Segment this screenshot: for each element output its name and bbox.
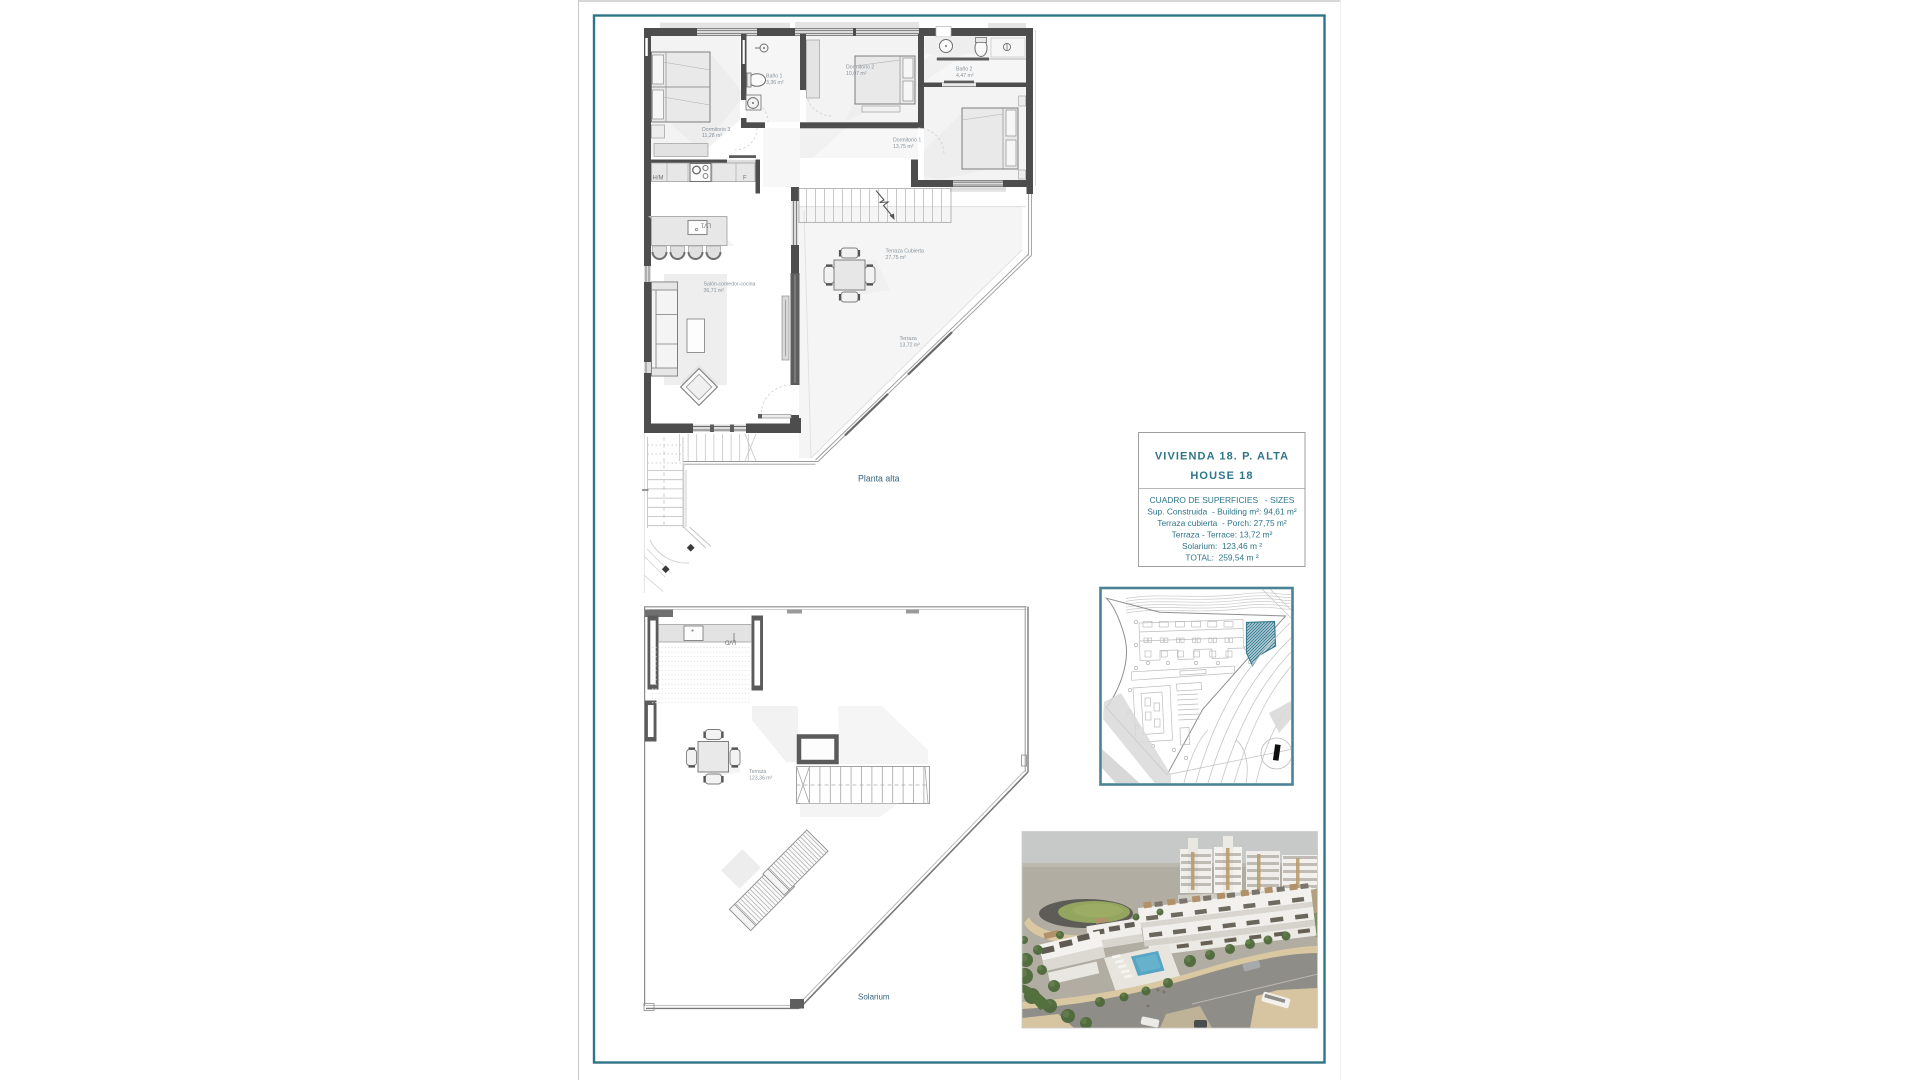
svg-text:Planta alta: Planta alta	[858, 474, 900, 484]
svg-text:VIVIENDA 18. P. ALTA: VIVIENDA 18. P. ALTA	[1155, 451, 1289, 463]
svg-text:11,28 m²: 11,28 m²	[702, 133, 722, 139]
svg-text:Terraza - Terrace: 13,72 m²: Terraza - Terrace: 13,72 m²	[1172, 530, 1273, 540]
svg-text:123,36 m²: 123,36 m²	[749, 776, 773, 782]
svg-text:LV1: LV1	[700, 222, 711, 228]
svg-text:3,36 m²: 3,36 m²	[766, 80, 784, 86]
svg-text:Solarium: Solarium	[858, 993, 890, 1002]
svg-text:TOTAL: 259,54 m ²: TOTAL: 259,54 m ²	[1185, 553, 1258, 563]
svg-text:F: F	[743, 176, 747, 182]
svg-text:HOUSE 18: HOUSE 18	[1190, 470, 1253, 482]
svg-text:Sup. Construida - Building m²: Sup. Construida - Building m²: 94,61 m²	[1147, 507, 1297, 517]
svg-text:13,75 m²: 13,75 m²	[893, 144, 914, 150]
svg-text:Baño 1: Baño 1	[766, 74, 783, 80]
svg-text:36,71 m²: 36,71 m²	[704, 288, 725, 294]
svg-text:10,07 m²: 10,07 m²	[846, 71, 867, 77]
svg-text:LVD: LVD	[724, 639, 736, 645]
svg-text:CUADRO DE SUPERFICIES - SIZE: CUADRO DE SUPERFICIES - SIZES	[1150, 495, 1295, 505]
svg-text:Baño 2: Baño 2	[956, 67, 973, 73]
svg-text:Dormitorio 1: Dormitorio 1	[893, 138, 921, 144]
svg-text:27,75 m²: 27,75 m²	[886, 255, 907, 261]
svg-text:Dormitorio 2: Dormitorio 2	[846, 65, 874, 71]
svg-text:13,72 m²: 13,72 m²	[900, 343, 921, 349]
svg-text:Salón-comedor-cocina: Salón-comedor-cocina	[704, 282, 756, 288]
svg-text:Terraza: Terraza	[749, 769, 766, 775]
svg-text:Solarium: 123,46 m ²: Solarium: 123,46 m ²	[1182, 541, 1262, 551]
svg-text:4,47 m²: 4,47 m²	[956, 73, 974, 79]
svg-text:Terraza: Terraza	[900, 336, 917, 342]
svg-text:H/M: H/M	[653, 176, 664, 182]
svg-text:Terraza cubierta - Porch: 27,: Terraza cubierta - Porch: 27,75 m²	[1157, 518, 1287, 528]
svg-text:Terraza Cubierta: Terraza Cubierta	[886, 249, 924, 255]
